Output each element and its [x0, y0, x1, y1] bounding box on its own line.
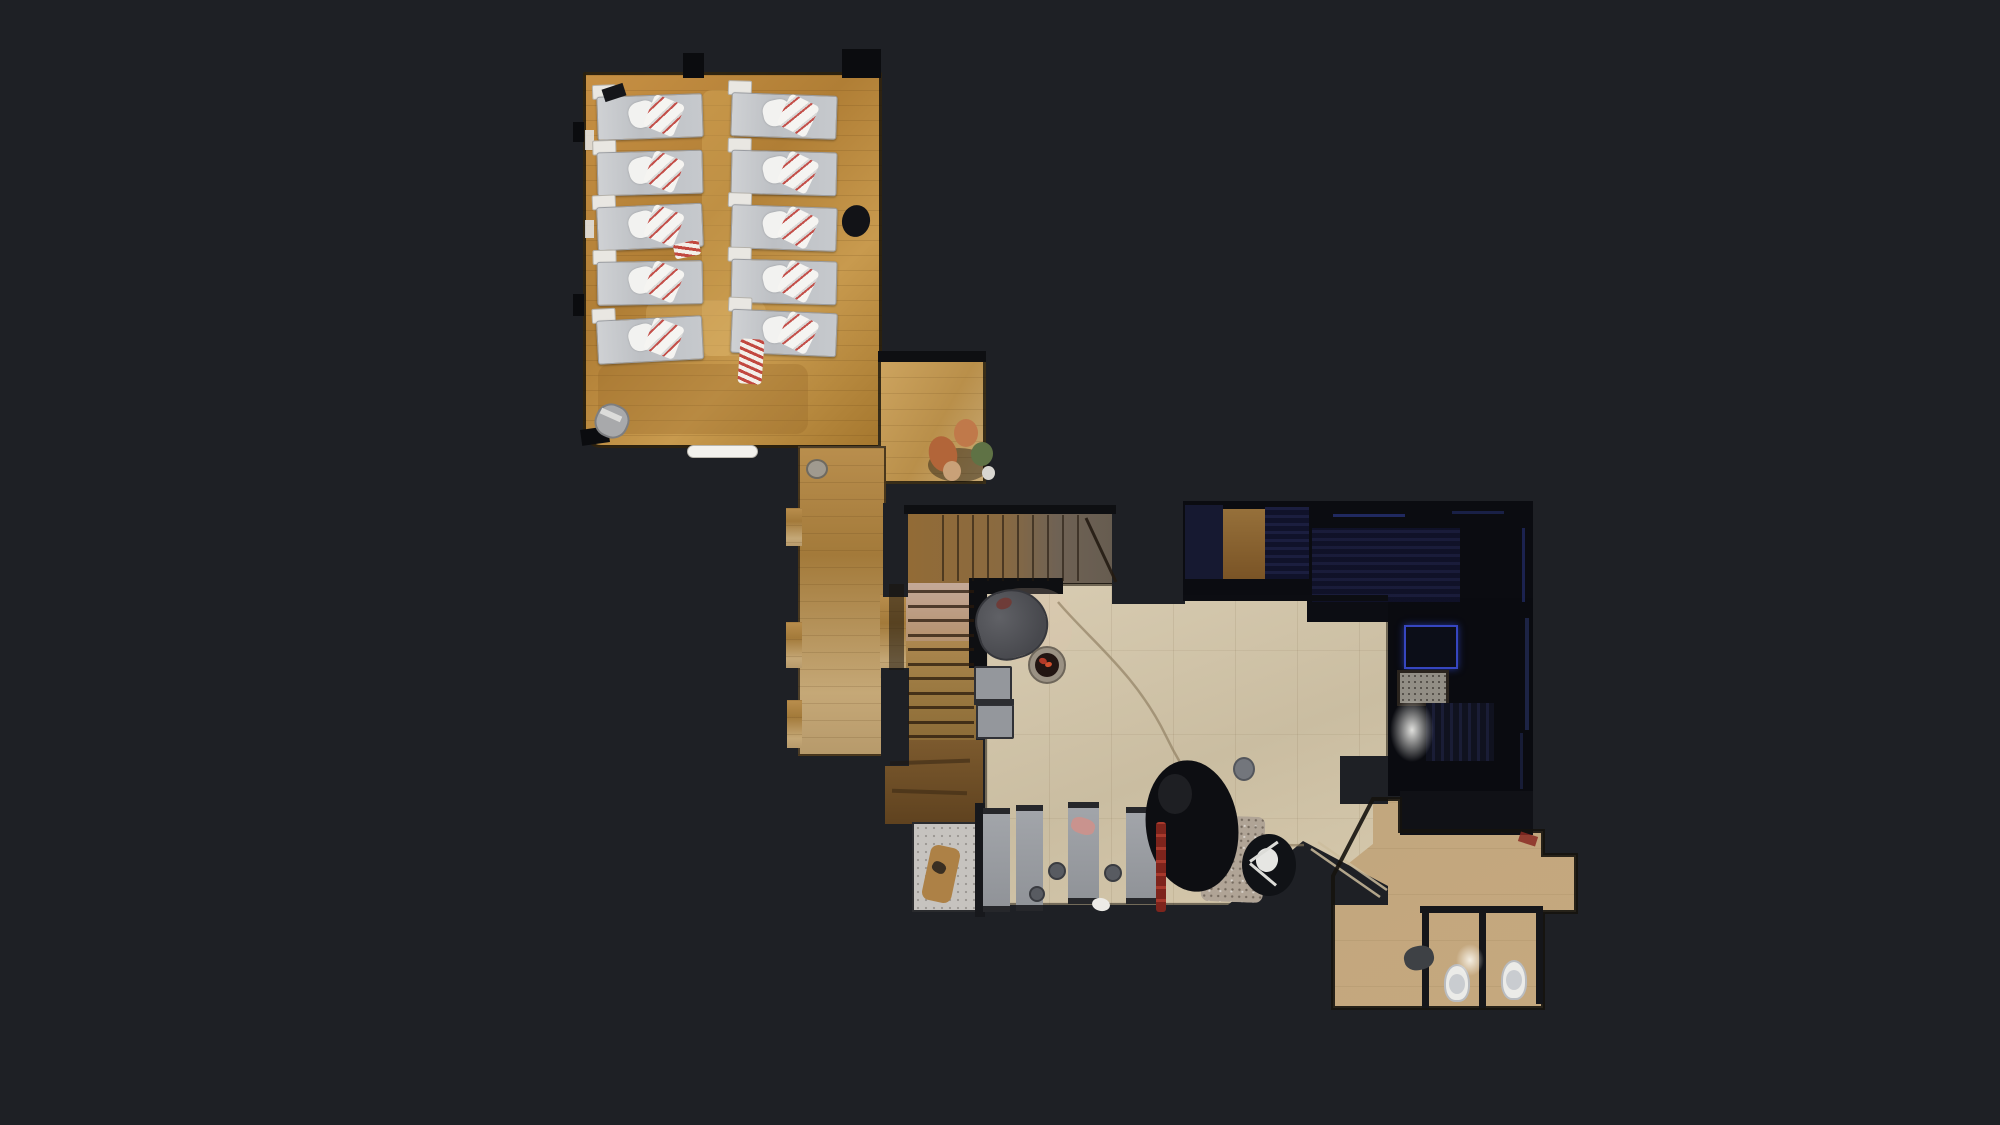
wall-glint-blue — [1452, 511, 1504, 514]
dining-table-end — [1016, 905, 1043, 911]
side-table — [976, 704, 1014, 739]
light-flare — [1390, 698, 1434, 762]
stage-speaker-right — [1265, 507, 1309, 579]
corridor-door-tab — [786, 622, 802, 668]
corridor-door-tab — [787, 700, 802, 748]
staircase-treads — [908, 648, 974, 651]
stair-room-floor — [906, 512, 1116, 585]
floorplan-canvas[interactable] — [0, 0, 2000, 1125]
hallway-top-wall — [878, 351, 986, 362]
stage-speaker-left — [1185, 505, 1223, 579]
stair-room-treads — [957, 515, 959, 581]
terracotta-pot — [954, 419, 978, 447]
stair-side-shadow — [889, 584, 904, 670]
stair-room-treads — [942, 515, 944, 581]
staircase-treads — [908, 721, 974, 724]
wc-stall-divider — [1536, 906, 1543, 1004]
wall-glint-blue — [1520, 733, 1523, 789]
round-stool — [1029, 886, 1045, 902]
clay-jug — [943, 461, 961, 481]
side-table-bar — [974, 699, 1014, 705]
staircase-treads — [908, 677, 974, 680]
dining-table-end — [1016, 805, 1043, 811]
wall-glint-blue — [1333, 514, 1405, 517]
dorm-left-wall-nub — [573, 122, 584, 142]
stair-room-treads — [1062, 515, 1064, 581]
bed — [596, 93, 703, 141]
void-upper-cut — [1112, 496, 1185, 604]
round-stool — [1048, 862, 1066, 880]
dark-bench-stripes — [1426, 703, 1494, 761]
stair-room-treads — [1032, 515, 1034, 581]
toilet-seat — [1449, 974, 1465, 994]
stair-room-treads — [972, 515, 974, 581]
dorm-wall-radiator — [585, 220, 594, 238]
staircase-treads — [908, 619, 974, 622]
staircase-treads — [908, 590, 974, 593]
corridor-floor — [798, 446, 886, 756]
round-stool — [1104, 864, 1122, 882]
stair-room-treads — [987, 515, 989, 581]
stage-bench-stripes — [1312, 528, 1460, 602]
dining-table-end — [983, 906, 1010, 912]
dorm-floor-patch-dark — [598, 364, 808, 434]
stage-front-wall — [1183, 595, 1388, 601]
dorm-top-wall-block — [842, 49, 881, 78]
dining-table-end — [983, 808, 1010, 814]
stair-room-treads — [1002, 515, 1004, 581]
red-ladder — [1156, 822, 1166, 912]
dining-table-end — [1068, 802, 1099, 808]
dorm-top-wall-block — [683, 53, 704, 78]
dining-table — [983, 808, 1010, 912]
spiral-void-sheen — [1158, 774, 1192, 814]
corridor-door-tab — [786, 508, 802, 546]
dark-band-above-wc — [1400, 791, 1533, 835]
staircase-treads — [908, 634, 974, 637]
stair-room-treads — [1017, 515, 1019, 581]
bed — [730, 92, 837, 140]
gray-chair — [1233, 757, 1255, 781]
stair-room-treads — [1047, 515, 1049, 581]
bed — [597, 260, 704, 306]
staircase-treads — [908, 692, 974, 695]
dorm-door-threshold — [687, 445, 758, 458]
bed — [730, 150, 837, 197]
side-table — [974, 666, 1012, 701]
white-cup — [982, 466, 995, 480]
bed — [730, 204, 837, 252]
stair-room-top-wall — [904, 505, 1116, 514]
staircase-treads — [908, 706, 974, 709]
neon-table — [1404, 625, 1458, 669]
wall-glint-blue — [1525, 618, 1529, 730]
staircase-treads — [908, 605, 974, 608]
bed — [596, 150, 703, 197]
stair-room-treads — [1077, 515, 1079, 581]
toilet-seat — [1506, 970, 1522, 990]
staircase-treads — [908, 663, 974, 666]
wall-glint-blue — [1522, 528, 1525, 602]
red-striped-mat — [737, 338, 764, 385]
bed — [596, 315, 704, 364]
hall-corner-cut — [1340, 756, 1388, 804]
corridor-stool — [806, 459, 828, 479]
staircase-treads — [908, 735, 974, 738]
stage-wood-column — [1223, 509, 1265, 579]
corridor-wall-block — [881, 668, 909, 766]
wc-light-flare — [1456, 944, 1484, 976]
dining-table-end — [1126, 898, 1157, 904]
corridor-wall-block — [883, 503, 908, 597]
dorm-left-wall-nub — [573, 294, 584, 316]
